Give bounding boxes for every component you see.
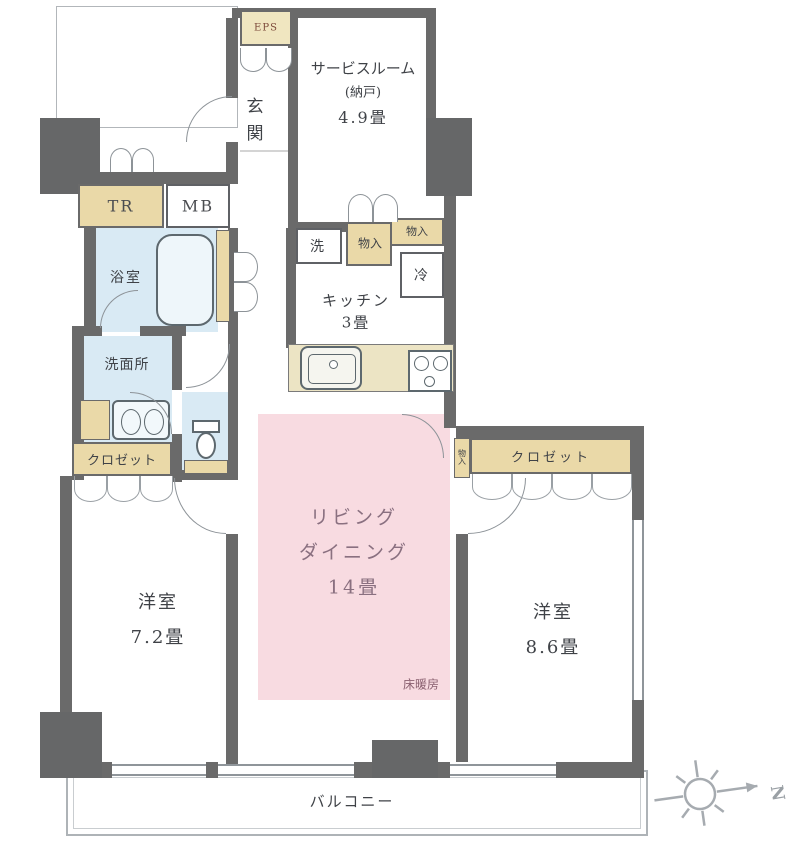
- pillar: [426, 118, 472, 196]
- compass-north-label: N: [766, 784, 788, 803]
- wall: [226, 142, 238, 184]
- storage-b-label: 物入: [406, 223, 428, 239]
- wall: [226, 534, 238, 776]
- wall: [140, 326, 186, 336]
- pillar: [40, 118, 100, 194]
- storage-a-label: 物入: [358, 235, 382, 252]
- entrance-label: 玄関: [241, 97, 266, 151]
- service-storage-door: [373, 194, 398, 222]
- closet-curtain: [107, 476, 140, 502]
- entrance-closet-door: [266, 48, 292, 72]
- faucet: [329, 360, 338, 369]
- window: [218, 764, 354, 776]
- closet-curtain: [512, 474, 552, 500]
- wall: [426, 18, 436, 130]
- washroom-label: 洗面所: [105, 354, 150, 374]
- living-label-1: リビング: [310, 503, 398, 530]
- floor-plan: 玄関 サービスルーム (納戸) 4.9畳 EPS TR MB 浴室 洗 物入 物…: [0, 0, 789, 849]
- wall: [172, 336, 182, 390]
- eps-label: EPS: [254, 23, 278, 34]
- closet-curtain: [552, 474, 592, 500]
- hall-closet-door: [234, 252, 258, 282]
- wall: [438, 762, 450, 778]
- compass-icon: N: [638, 742, 788, 844]
- living-label-2: ダイニング: [299, 538, 409, 565]
- storage-side-label: 物入: [457, 449, 468, 465]
- kitchen-size-label: 3畳: [342, 312, 371, 333]
- wall: [226, 18, 238, 98]
- closet-right-label: クロゼット: [511, 447, 591, 466]
- bathroom-label: 浴室: [110, 267, 142, 287]
- closet-curtain: [140, 476, 173, 502]
- bedroom-right-label: 洋室: [533, 598, 573, 624]
- kitchen-sink: [300, 346, 362, 390]
- bedroom-left-door-arc: [174, 478, 226, 534]
- closet-curtain: [74, 476, 107, 502]
- wall: [456, 534, 468, 762]
- fridge-label: 冷: [414, 265, 430, 285]
- burner: [424, 376, 435, 387]
- wall: [632, 438, 644, 520]
- wall: [354, 762, 374, 778]
- meter-box-label: MB: [182, 197, 214, 216]
- kitchen-label: キッチン: [322, 290, 390, 311]
- hall-storage-column: [216, 230, 230, 322]
- burner: [433, 356, 448, 371]
- hall-closet-door: [234, 282, 258, 312]
- pillar: [40, 712, 102, 778]
- wall: [444, 196, 456, 428]
- burner: [414, 356, 429, 371]
- toilet-door-arc: [186, 344, 230, 388]
- closet-left-label: クロゼット: [87, 450, 157, 469]
- service-storage-door: [348, 194, 373, 222]
- wall: [88, 172, 234, 184]
- trunk-room-label: TR: [108, 197, 135, 216]
- sink-basin: [308, 354, 356, 384]
- window: [632, 520, 644, 700]
- wall: [556, 762, 644, 778]
- closet-curtain: [472, 474, 512, 500]
- bathtub: [156, 234, 214, 326]
- pillar: [372, 740, 438, 778]
- closet-curtain: [592, 474, 632, 500]
- bedroom-right-size-label: 8.6畳: [526, 633, 581, 659]
- wall: [456, 426, 644, 438]
- wall: [206, 762, 218, 778]
- window: [450, 764, 556, 776]
- window: [112, 764, 206, 776]
- toilet-bowl: [196, 432, 216, 459]
- service-room-sub-label: (納戸): [345, 82, 381, 101]
- living-size-label: 14畳: [328, 573, 380, 600]
- balcony-label: バルコニー: [310, 791, 395, 812]
- trunk-room-door: [110, 148, 132, 172]
- entrance-closet-door: [240, 48, 266, 72]
- service-room-label: サービスルーム: [311, 58, 416, 79]
- trunk-room-door: [132, 148, 154, 172]
- wall: [72, 326, 102, 336]
- toilet-shelf: [184, 460, 228, 474]
- washroom-cabinet: [80, 400, 110, 440]
- wall: [84, 224, 96, 334]
- bedroom-left-size-label: 7.2畳: [131, 623, 186, 649]
- service-room-size-label: 4.9畳: [338, 104, 387, 128]
- floor-heating-label: 床暖房: [403, 676, 439, 693]
- wall: [286, 228, 296, 348]
- washer-label: 洗: [310, 236, 326, 256]
- bedroom-left-label: 洋室: [138, 588, 178, 614]
- stove: [408, 350, 452, 392]
